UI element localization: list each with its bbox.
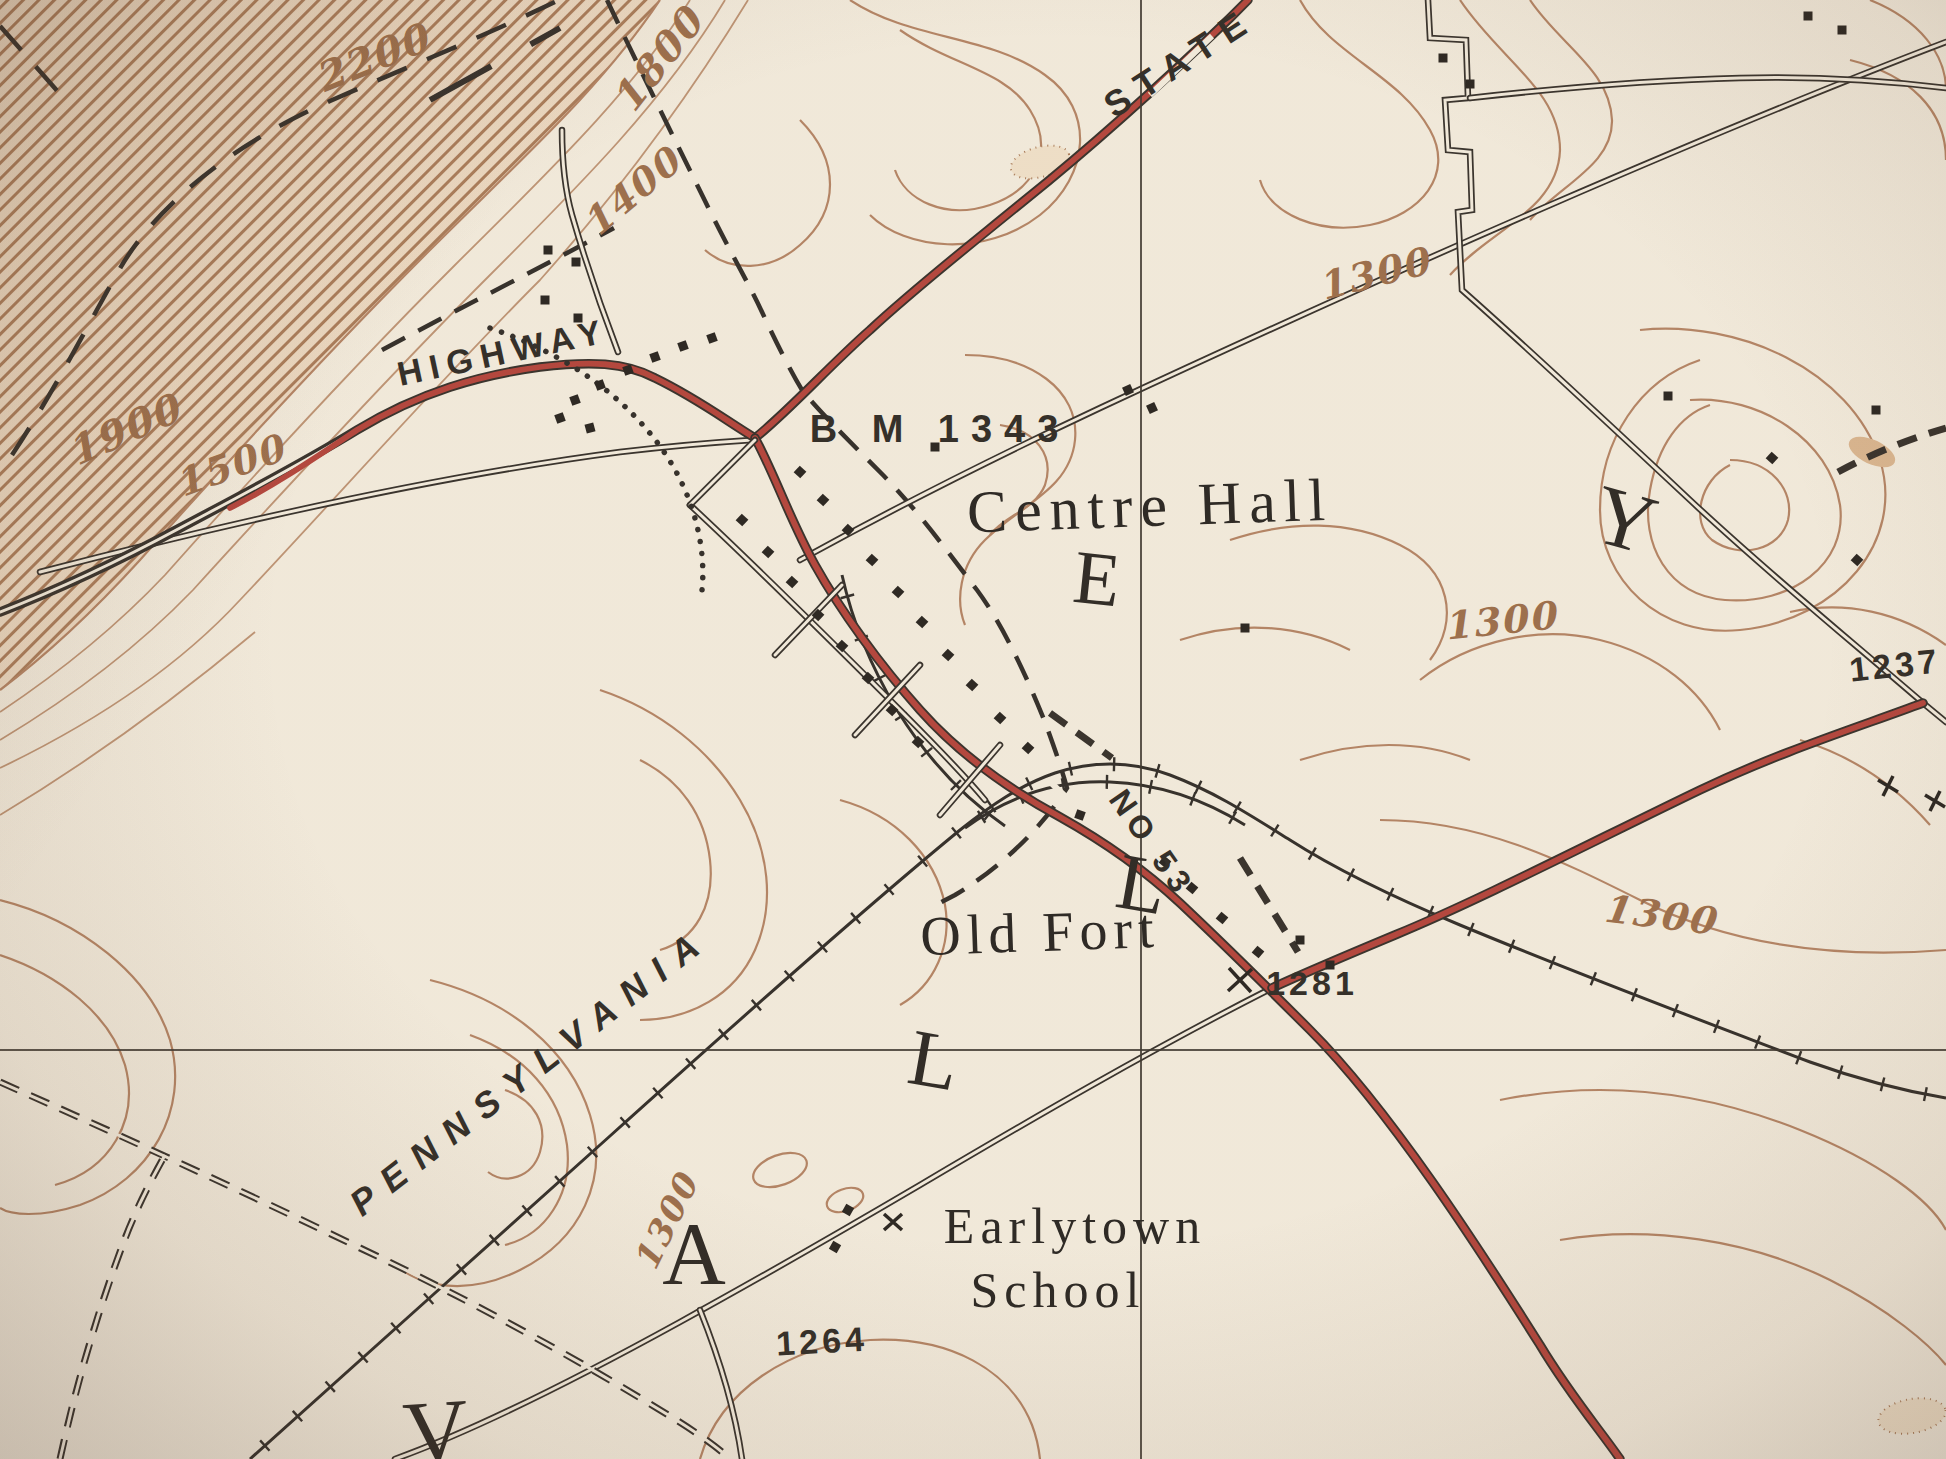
label-earlytown: Earlytown: [944, 1201, 1206, 1251]
mountain-contour-band: [0, 0, 748, 815]
contour-1300-b: 1300: [1441, 596, 1558, 646]
label-centre-hall: Centre Hall: [966, 470, 1334, 543]
label-bm-1343: B M 1343: [810, 410, 1071, 448]
road-branch-south: [700, 1310, 742, 1459]
railroad-pennsylvania: [250, 575, 1946, 1459]
valley-letter-e: E: [1070, 538, 1124, 618]
label-1237: 1237: [1848, 643, 1943, 686]
centre-hall-street-grid: [690, 440, 1000, 815]
valley-letter-v: V: [400, 1385, 471, 1459]
label-school: School: [971, 1265, 1146, 1315]
topo-map-photo: STATEHIGHWAYPENNSYLVANIANO 53Centre Hall…: [0, 0, 1946, 1459]
label-1281: 1281: [1266, 966, 1358, 1000]
valley-letter-a: A: [662, 1210, 726, 1298]
label-1264: 1264: [775, 1322, 868, 1361]
